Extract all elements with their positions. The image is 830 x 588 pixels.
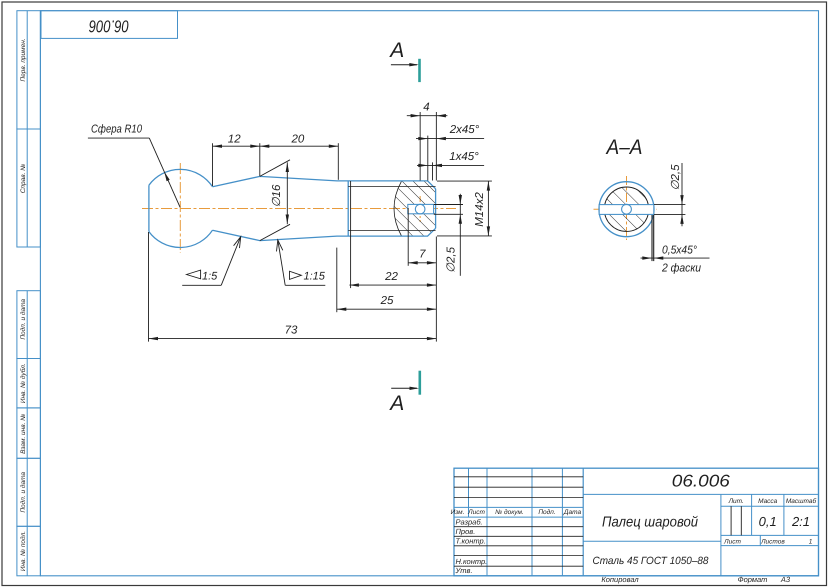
svg-text:4: 4: [423, 102, 429, 114]
svg-text:Сталь 45 ГОСТ 1050–88: Сталь 45 ГОСТ 1050–88: [593, 555, 709, 567]
svg-text:А3: А3: [780, 575, 791, 584]
svg-text:7: 7: [419, 249, 426, 261]
svg-text:М14х2: М14х2: [474, 192, 486, 227]
svg-text:2х45°: 2х45°: [449, 124, 480, 136]
svg-text:73: 73: [285, 324, 298, 336]
svg-text:1:15: 1:15: [304, 270, 326, 282]
svg-text:0,5х45°: 0,5х45°: [662, 244, 697, 256]
svg-text:2:1: 2:1: [791, 514, 810, 529]
svg-text:22: 22: [384, 271, 398, 283]
svg-text:2 фаски: 2 фаски: [661, 263, 701, 275]
svg-text:1: 1: [809, 538, 813, 545]
svg-text:Пров.: Пров.: [456, 527, 476, 536]
svg-text:Разраб.: Разраб.: [456, 518, 483, 527]
svg-text:Изм.: Изм.: [451, 509, 465, 516]
svg-text:Подп. и дата: Подп. и дата: [20, 472, 27, 513]
svg-text:Лист: Лист: [723, 538, 741, 545]
svg-text:Формат: Формат: [738, 575, 768, 584]
svg-text:1х45°: 1х45°: [449, 151, 479, 163]
svg-text:Масса: Масса: [758, 498, 778, 505]
svg-text:Подп.: Подп.: [538, 509, 555, 516]
svg-text:№ докум.: № докум.: [495, 509, 524, 516]
svg-text:Перв. примен.: Перв. примен.: [20, 38, 27, 81]
svg-text:∅16: ∅16: [271, 184, 283, 207]
svg-text:Справ. №: Справ. №: [20, 164, 27, 194]
svg-text:Н.контр.: Н.контр.: [456, 557, 488, 566]
svg-text:Масштаб: Масштаб: [786, 498, 817, 505]
svg-text:Утв.: Утв.: [455, 566, 473, 575]
svg-text:Взам. инв. №: Взам. инв. №: [20, 414, 27, 454]
svg-text:Инв. № подл.: Инв. № подл.: [20, 531, 27, 572]
svg-text:Сфера R10: Сфера R10: [91, 123, 142, 135]
svg-text:А–А: А–А: [605, 136, 643, 159]
svg-text:12: 12: [228, 134, 241, 146]
svg-text:Палец шаровой: Палец шаровой: [602, 515, 698, 531]
svg-text:Инв. № дубл.: Инв. № дубл.: [20, 363, 27, 403]
svg-text:20: 20: [291, 134, 305, 146]
svg-text:А: А: [388, 39, 404, 62]
svg-text:Лист: Лист: [467, 509, 485, 516]
svg-text:0,1: 0,1: [759, 514, 777, 529]
svg-text:Лит.: Лит.: [728, 498, 744, 505]
svg-text:06.006: 06.006: [89, 17, 129, 36]
svg-text:∅2,5: ∅2,5: [670, 164, 682, 191]
svg-text:Т.контр.: Т.контр.: [456, 537, 486, 546]
svg-text:∅2,5: ∅2,5: [446, 246, 458, 273]
svg-text:Копировал: Копировал: [601, 575, 639, 584]
svg-text:06.006: 06.006: [672, 472, 731, 491]
svg-text:25: 25: [380, 295, 394, 307]
svg-text:А: А: [388, 392, 404, 415]
svg-text:1:5: 1:5: [202, 270, 218, 282]
svg-text:Подп. и дата: Подп. и дата: [20, 299, 27, 340]
svg-text:Дата: Дата: [563, 509, 582, 516]
svg-text:Листов: Листов: [760, 538, 785, 545]
